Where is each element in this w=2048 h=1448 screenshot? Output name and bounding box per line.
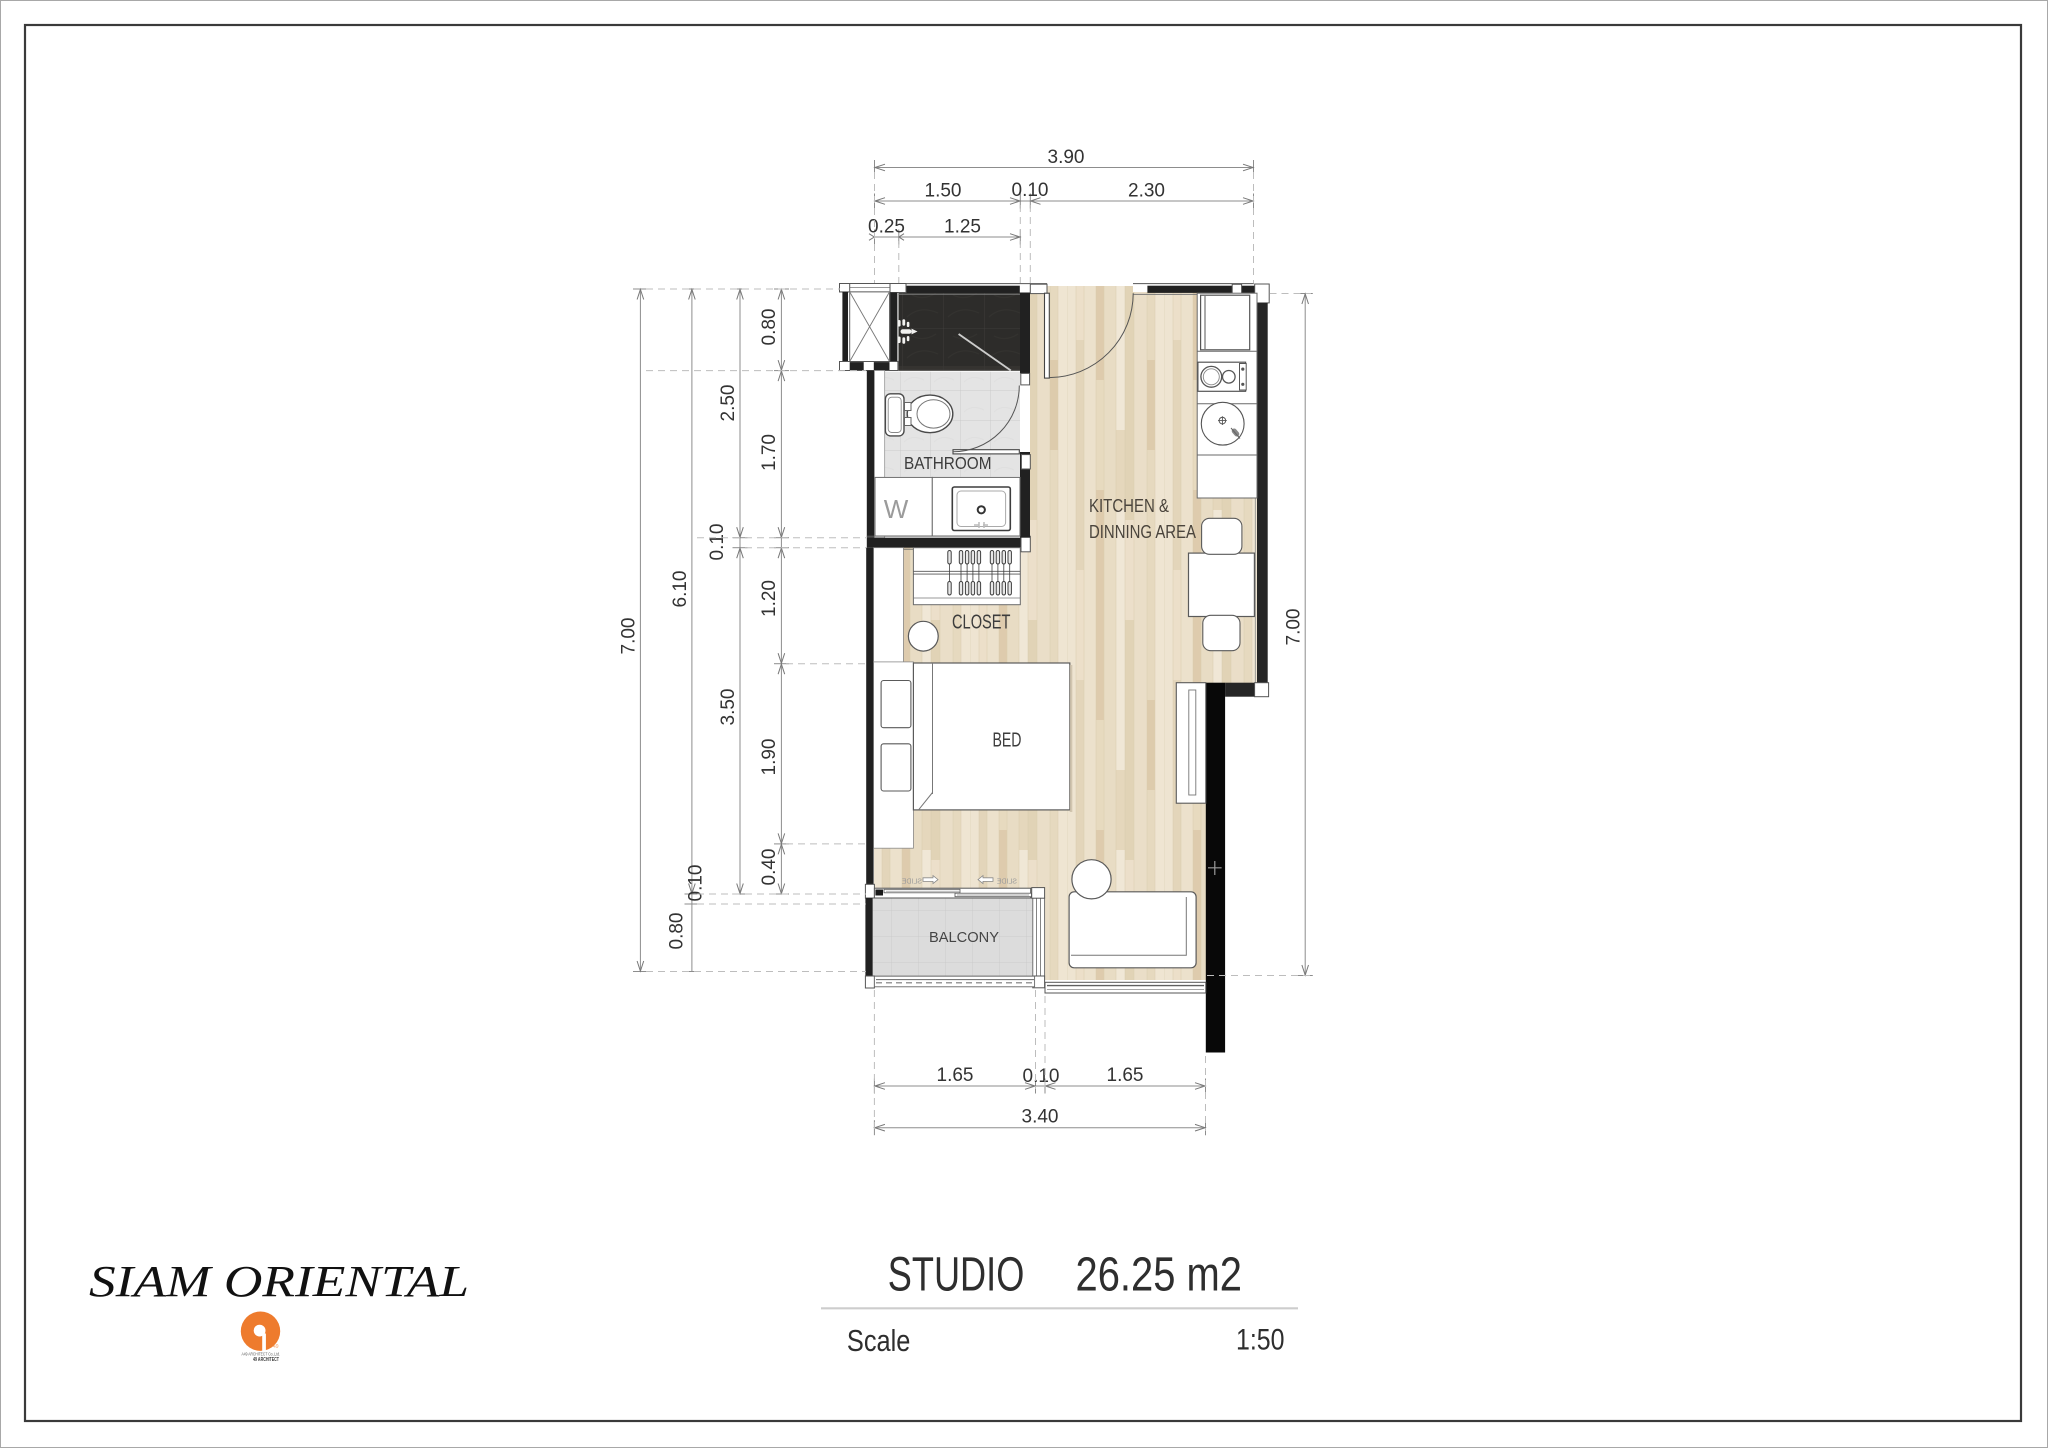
svg-text:1.65: 1.65 xyxy=(1107,1065,1144,1086)
svg-text:2.50: 2.50 xyxy=(718,385,739,422)
svg-text:1.65: 1.65 xyxy=(937,1065,974,1086)
svg-text:26.25 m2: 26.25 m2 xyxy=(1076,1248,1243,1302)
svg-text:1.50: 1.50 xyxy=(925,181,962,202)
svg-text:1.20: 1.20 xyxy=(759,580,780,617)
svg-text:0.10: 0.10 xyxy=(1023,1066,1060,1087)
svg-text:0.80: 0.80 xyxy=(759,309,780,346)
svg-text:A49 ARCHITECT Co.,Ltd.: A49 ARCHITECT Co.,Ltd. xyxy=(242,1352,281,1357)
svg-text:SIAM ORIENTAL: SIAM ORIENTAL xyxy=(89,1257,469,1306)
svg-text:KITCHEN &: KITCHEN & xyxy=(1089,495,1170,516)
svg-text:2.30: 2.30 xyxy=(1128,181,1165,202)
svg-text:3.40: 3.40 xyxy=(1022,1107,1059,1128)
svg-text:3.50: 3.50 xyxy=(718,689,739,726)
svg-text:DINNING AREA: DINNING AREA xyxy=(1089,521,1197,542)
svg-text:49: 49 xyxy=(273,1344,279,1350)
svg-text:CLOSET: CLOSET xyxy=(952,612,1011,634)
svg-text:1.70: 1.70 xyxy=(759,434,780,471)
svg-text:1.25: 1.25 xyxy=(944,217,981,238)
svg-text:STUDIO: STUDIO xyxy=(888,1248,1025,1302)
svg-text:6.10: 6.10 xyxy=(670,571,691,608)
svg-text:SLIDE: SLIDE xyxy=(996,879,1017,886)
svg-text:0.25: 0.25 xyxy=(868,217,905,238)
svg-text:BATHROOM: BATHROOM xyxy=(904,453,992,473)
svg-text:SLIDE: SLIDE xyxy=(901,879,922,886)
svg-text:BALCONY: BALCONY xyxy=(929,929,999,946)
svg-text:0.80: 0.80 xyxy=(667,913,688,950)
svg-text:0.40: 0.40 xyxy=(759,849,780,886)
svg-text:7.00: 7.00 xyxy=(619,618,640,655)
svg-text:0.10: 0.10 xyxy=(707,524,728,561)
svg-text:1.90: 1.90 xyxy=(759,739,780,776)
svg-text:Scale: Scale xyxy=(847,1323,911,1358)
svg-text:0.10: 0.10 xyxy=(1012,180,1049,201)
svg-text:1:50: 1:50 xyxy=(1236,1324,1285,1357)
svg-text:7.00: 7.00 xyxy=(1283,609,1304,646)
svg-text:BED: BED xyxy=(993,729,1022,752)
svg-text:0.10: 0.10 xyxy=(686,865,707,902)
svg-text:3.90: 3.90 xyxy=(1048,147,1085,168)
svg-text:W: W xyxy=(884,494,909,524)
svg-text:49 ARCHITECT: 49 ARCHITECT xyxy=(253,1357,279,1363)
